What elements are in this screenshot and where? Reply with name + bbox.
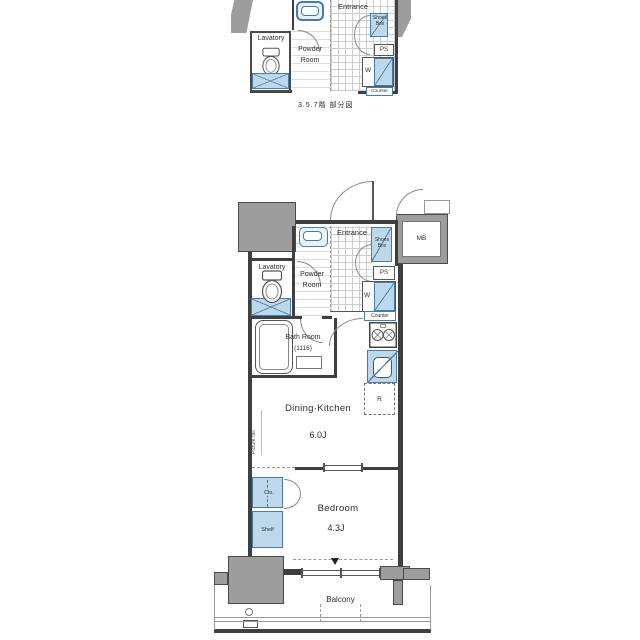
wall [284, 569, 302, 575]
exterior-wall-gray [231, 0, 253, 33]
powder-room-label: Room [294, 282, 330, 290]
wall [292, 0, 294, 30]
structural-column [238, 202, 296, 252]
sink-faucet-line [368, 351, 398, 382]
powder-room-label: Room [292, 57, 328, 65]
closet-bifold-door [284, 494, 301, 509]
shoes-box: Shoes Box [370, 13, 388, 37]
powder-room-label: Powder [292, 46, 328, 54]
ps-label: PS [375, 45, 393, 55]
sink-unit [296, 1, 324, 21]
wall [362, 467, 398, 470]
sink-basin [303, 231, 322, 241]
wall [398, 264, 403, 570]
curtain-box-line [293, 559, 393, 560]
balcony-drain [245, 608, 253, 616]
wall-stub [403, 568, 430, 580]
lavatory-label: Lavatory [251, 35, 291, 43]
washer-label: W [364, 292, 370, 299]
kitchen-sink [367, 350, 397, 383]
balcony-label: Balcony [318, 596, 363, 605]
counter-label: Counter [365, 312, 395, 321]
washing-machine [374, 58, 393, 86]
bath-step [296, 356, 322, 369]
toilet-icon [258, 270, 286, 304]
shoes-box-label: Shoes Box [372, 238, 392, 249]
balcony-partition-line [360, 604, 361, 622]
structural-column [228, 556, 284, 604]
balcony-partition-line [320, 604, 321, 622]
closet-label: Clo. [259, 490, 279, 496]
counter: Counter [366, 87, 393, 96]
sink-basin [301, 6, 319, 16]
balcony-side-line [430, 585, 431, 630]
shoes-box: Shoes Box [371, 227, 392, 262]
window-tick [340, 568, 342, 578]
main-plan: MB Entrance Shoes Box PS [0, 120, 640, 640]
counter-label: Counter [367, 88, 392, 96]
balcony-edge [214, 629, 431, 633]
sliding-door [323, 465, 362, 466]
closet-open-edge [252, 467, 295, 468]
bedroom-label: Bedroom [310, 504, 366, 514]
wall-stub [214, 572, 228, 585]
wall [250, 375, 337, 378]
wall [322, 316, 332, 319]
wall [395, 0, 398, 93]
shoes-box-label: Shoes Box [371, 16, 389, 27]
wall [250, 258, 295, 261]
balcony-railing [214, 617, 431, 618]
vanity-counter [252, 73, 289, 89]
shelf-label: Shelf [253, 527, 282, 533]
pipe-space: PS [374, 44, 394, 56]
closet-bifold-door [284, 479, 301, 494]
balcony-side-line [214, 585, 215, 630]
dining-kitchen-size: 6.0J [300, 431, 336, 441]
mb-label: MB [403, 235, 440, 242]
balcony-railing [214, 621, 431, 622]
entrance-door-leaf [372, 181, 374, 221]
wall [250, 316, 302, 319]
entrance-label: Entrance [331, 229, 373, 237]
bedroom-size: 4.3J [318, 524, 354, 534]
partial-plan-caption: 3.5.7階 部分図 [298, 102, 354, 110]
picture-rail-line [261, 410, 262, 455]
floor-plan-image: Lavatory Powder Room Entrance Shoes Box … [0, 0, 640, 640]
wall [296, 220, 398, 224]
orientation-triangle [331, 558, 339, 565]
balcony-divider [393, 580, 403, 605]
pipe-space: PS [373, 266, 395, 280]
sliding-door-tick [361, 463, 363, 472]
refrigerator-label: R [365, 396, 394, 403]
picture-rail-label: Picture rail [252, 412, 258, 454]
kitchen-counter: Counter [364, 311, 396, 321]
washer-label: W [365, 67, 371, 74]
dining-kitchen-label: Dining·Kitchen [280, 404, 356, 414]
sliding-door-tick [323, 463, 325, 472]
entrance-door-arc [330, 181, 373, 220]
sliding-door [323, 470, 362, 471]
wall [395, 220, 398, 266]
entrance-label: Entrance [332, 3, 374, 11]
bath-room-label: (1116) [281, 345, 325, 352]
laundry-sink-unit [299, 227, 328, 247]
closet: Clo. [252, 477, 283, 508]
meter-box-door-arc [396, 189, 423, 216]
bath-room-label: Bath Room [281, 334, 325, 342]
window-tick [301, 568, 303, 578]
neighbor-structure [424, 200, 450, 214]
washing-machine [374, 282, 395, 311]
partial-plan: Lavatory Powder Room Entrance Shoes Box … [0, 0, 640, 120]
ps-label: PS [374, 267, 394, 279]
refrigerator-space: R [364, 383, 395, 415]
wall [295, 467, 323, 470]
meter-box-room: MB [402, 221, 441, 257]
powder-room-label: Powder [294, 271, 330, 279]
stove-icon [369, 322, 397, 348]
shelf: Shelf [252, 511, 283, 548]
